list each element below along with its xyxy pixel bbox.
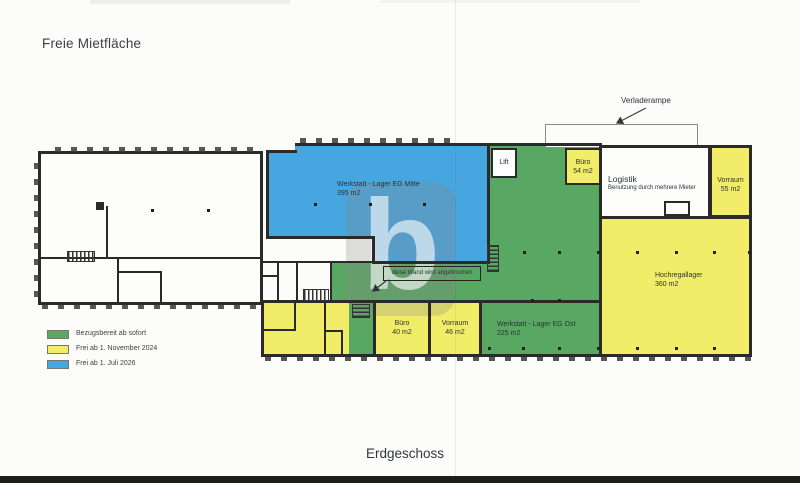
- floor-plan: b: [0, 0, 800, 483]
- scan-page: Freie Mietfläche b: [0, 0, 800, 483]
- wall: [106, 206, 108, 259]
- annotation-wall-demolition: diese Wand wird abgebrochen: [383, 266, 481, 281]
- column-dot: [207, 209, 210, 212]
- column-dot: [597, 347, 600, 350]
- column-dot: [314, 203, 317, 206]
- column-dot: [558, 251, 561, 254]
- wall: [266, 150, 269, 239]
- wall: [262, 329, 296, 331]
- scan-bottom-edge: [0, 476, 800, 483]
- label-lift: Lift: [491, 158, 517, 167]
- wall: [262, 354, 752, 357]
- label-werkstatt-mitte: Werkstatt - Lager EG Mitte 395 m2: [337, 180, 420, 198]
- wall-hatch: [55, 147, 260, 152]
- wall: [117, 271, 162, 273]
- wall: [96, 202, 104, 210]
- label-buero-40: Büro 40 m2: [375, 319, 429, 337]
- column-dot: [488, 347, 491, 350]
- wall: [263, 261, 374, 263]
- column-dot: [675, 251, 678, 254]
- column-dot: [523, 251, 526, 254]
- column-dot: [558, 299, 561, 302]
- annotation-verladerampe: Verladerampe: [621, 96, 671, 106]
- legend-label: Frei ab 1. Juli 2026: [76, 360, 136, 367]
- legend-label: Bezugsbereit ab sofort: [76, 330, 146, 337]
- wall: [341, 330, 343, 355]
- column-dot: [675, 347, 678, 350]
- wall-hatch: [34, 162, 39, 297]
- stairs-icon: [303, 289, 329, 301]
- logistik-shaft-box: [664, 201, 690, 216]
- stairs-icon: [487, 245, 499, 272]
- column-dot: [597, 251, 600, 254]
- wall: [296, 263, 298, 302]
- wall: [266, 150, 297, 153]
- label-vorraum-55: Vorraum 55 m2: [710, 176, 751, 194]
- region-werkstatt-lager-eg-mitte: [295, 145, 488, 153]
- wall: [117, 259, 119, 304]
- label-logistik: Logistik Benutzung durch mehrere Mieter: [608, 174, 696, 193]
- wall: [599, 216, 752, 219]
- stairs-icon: [352, 304, 370, 318]
- column-dot: [522, 347, 525, 350]
- wall: [324, 302, 326, 354]
- legend-swatch-yellow: [47, 345, 69, 354]
- column-dot: [713, 251, 716, 254]
- column-dot: [558, 347, 561, 350]
- label-buero-54: Büro 54 m2: [565, 158, 601, 176]
- wall: [372, 236, 375, 264]
- label-werkstatt-ost: Werkstatt - Lager EG Ost 225 m2: [497, 320, 575, 338]
- wall: [602, 145, 752, 148]
- legend-swatch-green: [47, 330, 69, 339]
- wall-hatch: [265, 357, 752, 361]
- column-dot: [151, 209, 154, 212]
- wall: [266, 236, 375, 239]
- column-dot: [423, 203, 426, 206]
- floor-caption: Erdgeschoss: [320, 446, 490, 461]
- wall: [330, 261, 332, 303]
- legend-label: Frei ab 1. November 2024: [76, 345, 157, 352]
- column-dot: [531, 299, 534, 302]
- wall: [295, 143, 602, 146]
- wall: [263, 275, 279, 277]
- wall: [277, 263, 279, 302]
- column-dot: [748, 251, 751, 254]
- column-dot: [636, 251, 639, 254]
- legend-swatch-blue: [47, 360, 69, 369]
- scan-fold-line: [455, 0, 456, 477]
- wall: [372, 261, 490, 264]
- scan-smudge: [90, 0, 290, 4]
- wall: [160, 271, 162, 304]
- column-dot: [369, 203, 372, 206]
- scan-smudge: [380, 0, 640, 3]
- column-dot: [636, 347, 639, 350]
- wall: [294, 302, 296, 330]
- label-hochregallager: Hochregallager 360 m2: [655, 271, 702, 289]
- left-building-outline: [38, 151, 263, 305]
- stairs-icon: [67, 251, 95, 262]
- watermark-logo: b: [346, 182, 456, 316]
- wall-hatch: [42, 305, 261, 309]
- column-dot: [713, 347, 716, 350]
